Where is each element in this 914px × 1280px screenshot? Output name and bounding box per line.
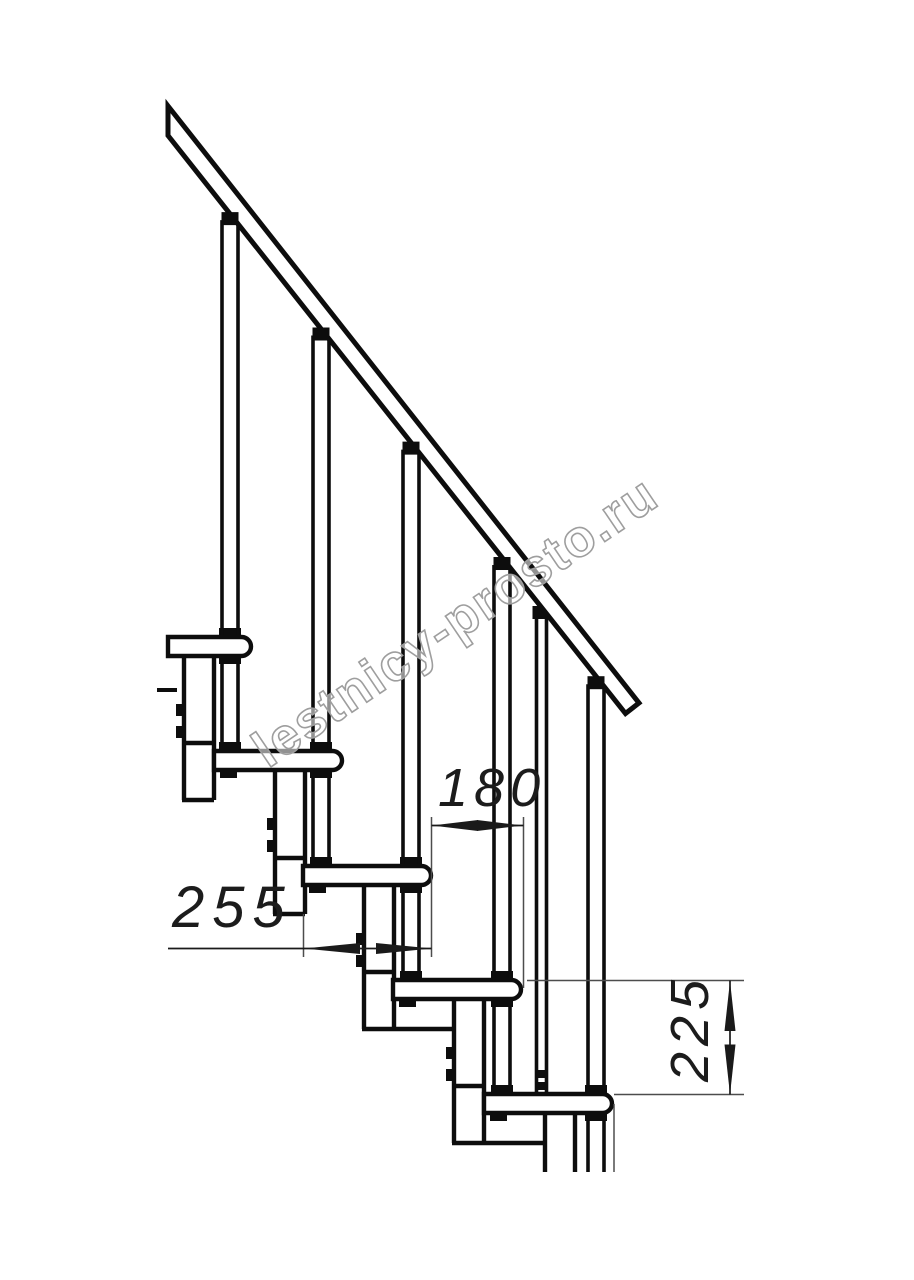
- dimension-step-run: 180: [438, 758, 546, 818]
- dimension-label-255: 255: [171, 875, 293, 940]
- baluster-5: [588, 684, 604, 1092]
- tread-5: [484, 1094, 612, 1113]
- support-column-5: [545, 1113, 575, 1172]
- staircase-technical-drawing: 255 180 225 lestnicy-prosto.ru: [0, 0, 914, 1280]
- dimension-label-180: 180: [438, 758, 546, 818]
- baluster-tube-4: [494, 999, 510, 1094]
- baluster-1: [222, 220, 238, 635]
- baluster-rail-connector-3: [403, 442, 420, 455]
- dimension-tread-depth: 255: [171, 875, 293, 940]
- baluster-rail-connector-1: [222, 212, 239, 225]
- baluster-tube-1: [222, 656, 238, 751]
- tread-1: [168, 637, 251, 656]
- tread-4: [393, 980, 521, 999]
- baluster-rail-connector-2: [313, 328, 330, 341]
- baluster-rail-connector-5: [588, 676, 605, 689]
- baluster-tube-3: [403, 885, 419, 980]
- baluster-tube-5: [588, 1113, 604, 1172]
- dimension-label-225: 225: [660, 974, 720, 1083]
- dimension-line-225: [725, 981, 736, 1095]
- support-post: [533, 606, 551, 1114]
- support-column-1: [176, 656, 214, 800]
- dimension-step-rise: 225: [660, 974, 720, 1083]
- dimension-line-255: [168, 943, 432, 954]
- tread-3: [303, 866, 431, 885]
- baluster-tube-2: [313, 770, 329, 866]
- staircase-drawing-canvas: 255 180 225 lestnicy-prosto.ru: [0, 0, 914, 1280]
